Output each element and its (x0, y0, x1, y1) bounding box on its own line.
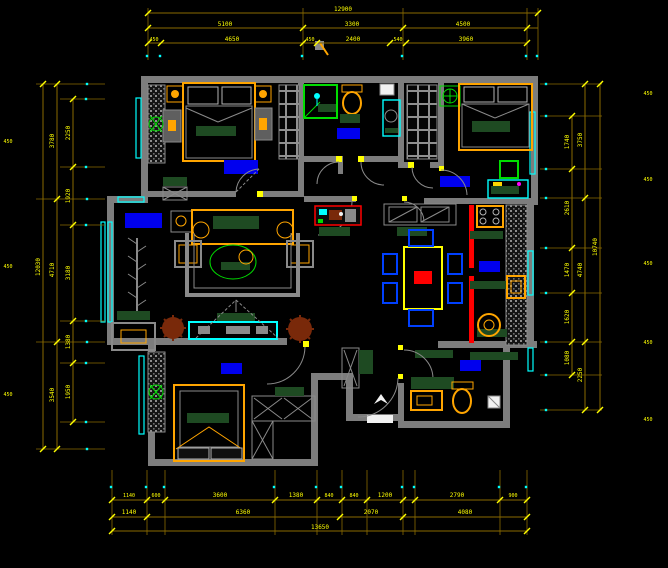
dim-bottom-overall-text: 13650 (311, 524, 329, 531)
dim-left-inner-text-1: 2250 (65, 125, 72, 140)
dim-left-dots-b (85, 224, 87, 226)
wall-bed1-bottom-b (260, 191, 304, 197)
dining-chair-left-2 (383, 283, 397, 303)
wall-bath-bottom-b (360, 156, 398, 162)
kitchen-burner-3 (480, 218, 486, 224)
wall-dining-top (424, 198, 534, 204)
dim-bottom-dots (273, 486, 275, 488)
living-side-table-flower (176, 216, 186, 226)
dim-top-row3-text-5: 540 (393, 37, 402, 43)
dim-left-dots-a (86, 341, 88, 343)
dim-top-dots (525, 55, 527, 57)
bed1-bench (163, 177, 187, 186)
room-label-kitchen (479, 261, 500, 272)
kitchen-burner-1 (480, 209, 486, 215)
bed2-fold-b (495, 104, 529, 118)
dim-right-mid-text-1: 3750 (577, 132, 584, 147)
axis-tag-right-5: 450 (643, 417, 652, 423)
dim-left-mid-text-3: 3540 (49, 387, 56, 402)
bed1-dresser-left-knob (168, 120, 176, 131)
dim-right-dots (545, 168, 547, 170)
dim-left-inner-text-2: 1920 (65, 188, 72, 203)
dim-top-row3-text-1: 450 (149, 37, 158, 43)
axis-tag-left-3: 450 (3, 392, 12, 398)
bed1-pillow-right (222, 87, 251, 104)
dim-bottom-row1-text-8: 2790 (450, 492, 465, 499)
room-label-bed1 (224, 160, 258, 174)
dim-bottom-dots (413, 486, 415, 488)
dim-right-inner-text-1: 1740 (564, 134, 571, 149)
dim-bottom-row2-text-2: 6360 (236, 509, 251, 516)
wall-bath-right (398, 83, 404, 162)
wall-bath2-left (398, 383, 404, 421)
sofa-cushion (213, 216, 259, 229)
bed2-desk-dot (517, 182, 521, 186)
dim-left-mid-text-1: 3780 (49, 133, 56, 148)
dim-bottom-row1-text-3: 3600 (213, 492, 228, 499)
bed1-wardrobe (279, 85, 299, 159)
axis-tag-right-1: 450 (643, 91, 652, 97)
dim-right-overall-text: 10740 (592, 238, 599, 256)
dining-sideboard-diag-a (389, 207, 417, 222)
cloak-door-hinge (408, 162, 414, 168)
entry-label-white (367, 415, 393, 423)
dim-left-inner-text-5: 1950 (65, 384, 72, 399)
bed1-fold-a (186, 108, 218, 122)
bath-vanity-bowl (385, 110, 397, 122)
window-bed1-left (136, 98, 141, 158)
bath-door-hinge-a (336, 156, 342, 162)
dim-bottom-dots (145, 486, 147, 488)
bed1-lamp-left (171, 90, 179, 98)
dim-left-overall-text: 12030 (35, 258, 42, 276)
bed1-fold-b (218, 108, 252, 122)
bath-door-arc-a (317, 162, 339, 184)
living-branch-twig-8 (137, 300, 146, 306)
entry-door-arc (358, 378, 398, 417)
dim-bottom-dots (340, 486, 342, 488)
bed3-fold (176, 427, 242, 449)
corridor-dining-hinge (402, 196, 407, 201)
bath-sink (380, 84, 394, 95)
dim-bottom-dots (163, 486, 165, 488)
bed3-door-hinge (303, 341, 309, 347)
coffee-table-swirl (239, 250, 253, 264)
dim-right-dots (545, 374, 547, 376)
axis-tag-left-2: 450 (3, 264, 12, 270)
bed2-desk-top (491, 186, 519, 194)
wall-left-step2 (107, 338, 155, 345)
wall-bath-bottom-a (304, 156, 338, 162)
bed2-chair (500, 161, 518, 178)
dim-right-dots (545, 115, 547, 117)
dim-top-row3-text-2: 4650 (225, 36, 240, 43)
dining-table-center (414, 271, 432, 284)
dim-right-inner-text-3: 1470 (564, 262, 571, 277)
cloak-door-arc (412, 167, 433, 188)
console-item-cyan (319, 209, 327, 215)
living-branch-twig-5 (128, 274, 137, 280)
bed2-pillow-left (464, 87, 494, 102)
living-branch-twig-4 (137, 264, 146, 270)
tv-shelf (217, 313, 255, 322)
dim-right-mid-text-3: 2250 (577, 367, 584, 382)
dim-left-dots-a (86, 448, 88, 450)
dim-bottom-dots (525, 486, 527, 488)
living-branch-twig-2 (137, 246, 146, 252)
dim-left-dots-b (85, 362, 87, 364)
bed2-pillow-right (498, 87, 527, 102)
bed3-shelf (275, 387, 304, 396)
bed1-lamp-right (259, 90, 267, 98)
dim-bottom-dots (498, 486, 500, 488)
dim-bottom-dots (315, 486, 317, 488)
living-shelf-left (117, 311, 150, 320)
kitchen-heater-core (484, 320, 494, 330)
floor-plan-svg: 1290051003300450045046504502400540396011… (0, 0, 668, 568)
dim-right-inner-text-4: 1620 (564, 309, 571, 324)
dim-left-mid-text-2: 4710 (49, 262, 56, 277)
dining-chair-right-2 (448, 283, 462, 303)
bath2-counter (411, 377, 454, 389)
dim-bottom-row2-text-1: 1140 (122, 509, 137, 516)
room-label-bed3 (221, 363, 242, 374)
dim-right-inner-text-2: 2610 (564, 200, 571, 215)
dim-bottom-row2-text-3: 2070 (364, 509, 379, 516)
bed2-desk-item (493, 182, 502, 186)
dining-chair-left-1 (383, 254, 397, 274)
entry-compass-icon (374, 394, 388, 404)
dim-left-inner-text-3: 3180 (65, 265, 72, 280)
room-label-bed2 (440, 176, 470, 187)
toilet-bowl (343, 92, 361, 114)
bath-cabinet-b (340, 114, 360, 123)
dim-top-row3-text-3: 450 (305, 37, 314, 43)
window-living-left-a (101, 222, 105, 322)
dim-bottom-row1-text-5: 840 (324, 493, 333, 499)
living-branch-twig-3 (128, 256, 137, 262)
bath2-shelf-a (415, 350, 453, 358)
dim-left-dots-a (86, 83, 88, 85)
axis-tag-right-4: 450 (643, 340, 652, 346)
dim-top-overall-text: 12900 (334, 6, 352, 13)
dim-bottom-row1-text-6: 840 (349, 493, 358, 499)
entry-shoe-shelf (359, 350, 373, 374)
dim-top-dots (536, 55, 538, 57)
dim-top-row3-text-6: 3960 (459, 36, 474, 43)
wall-left-upper (141, 76, 148, 201)
dim-left-dots-b (85, 166, 87, 168)
dim-bottom-row1-text-7: 1200 (378, 492, 393, 499)
bed1-dresser-right-knob (259, 118, 267, 130)
kitchen-counter-b (470, 281, 507, 289)
living-side-table-top (171, 211, 192, 232)
axis-tag-right-3: 450 (643, 261, 652, 267)
bath-door-hinge-b (358, 156, 364, 162)
cloak-wardrobe (407, 85, 437, 159)
dim-right-dots (545, 341, 547, 343)
dim-left-dots-a (86, 198, 88, 200)
dim-bottom-dots (110, 486, 112, 488)
shower-diag (304, 102, 320, 118)
corridor-living-hinge (352, 196, 357, 201)
bath2-toilet-bowl (453, 389, 471, 413)
kitchen-burner-2 (493, 209, 499, 215)
dim-left-dots-b (85, 421, 87, 423)
bed2-fold-a (462, 104, 495, 118)
dining-sideboard-shelf (397, 227, 427, 236)
dining-sideboard-diag-b (421, 207, 449, 222)
kitchen-stove (477, 206, 503, 227)
bed2-blanket (472, 121, 510, 132)
living-branch-twig-7 (128, 292, 137, 298)
entry-door-hinge (398, 374, 403, 379)
dim-right-dots (545, 83, 547, 85)
bed1-pillow-left (188, 87, 218, 104)
coffee-table-top (221, 262, 250, 270)
dining-chair-right-1 (448, 254, 462, 274)
bed1-blanket (196, 126, 236, 136)
wall-corridor-bottom (304, 196, 356, 202)
bath-vanity-shelf (385, 128, 398, 133)
room-label-bath2 (460, 360, 481, 371)
wall-top (148, 76, 538, 83)
axis-tag-left-1: 450 (3, 139, 12, 145)
dim-right-dots (545, 197, 547, 199)
bath2-shelf-b (470, 352, 518, 360)
axis-tag-right-2: 450 (643, 177, 652, 183)
bed3-blanket (187, 413, 229, 423)
dim-bottom-row2-text-4: 4080 (458, 509, 473, 516)
dim-top-dots (301, 55, 303, 57)
shower-head (314, 93, 320, 99)
living-branch-twig-1 (128, 238, 137, 244)
dim-right-inner-text-5: 1080 (564, 350, 571, 365)
window-bath2-right (528, 348, 533, 371)
living-branch-twig-6 (137, 282, 146, 288)
window-bed3-left (139, 356, 144, 434)
bath2-toilet-tank (452, 382, 473, 389)
console-shelf (319, 227, 350, 236)
cad-canvas: 1290051003300450045046504502400540396011… (0, 0, 668, 568)
bed3-door-arc (267, 347, 305, 384)
dim-bottom-dots (401, 486, 403, 488)
sofa-scroll-left (193, 222, 209, 238)
kitchen-counter-a (470, 231, 503, 239)
room-label-living (125, 213, 162, 228)
kitchen-burner-4 (493, 218, 499, 224)
console-item-gray (345, 209, 356, 222)
wall-bed1-bottom-a (148, 191, 236, 197)
dining-chair-bottom (409, 310, 433, 326)
dim-right-dots (545, 409, 547, 411)
dim-bottom-row1-text-2: 600 (151, 493, 160, 499)
dim-top-dots (401, 55, 403, 57)
bed3-headboard-b (211, 448, 242, 459)
dim-right-mid-text-2: 4740 (577, 262, 584, 277)
dim-right-dots (545, 247, 547, 249)
dim-bottom-row1-text-9: 900 (508, 493, 517, 499)
bath-cabinet-a (318, 104, 336, 112)
bath2-door-hinge (398, 345, 403, 350)
bed2-frame (459, 84, 532, 150)
dim-bottom-row1-text-1: 1140 (123, 493, 135, 499)
dim-top-dots (159, 55, 161, 57)
room-label-bath (337, 128, 360, 139)
dim-left-dots-b (85, 98, 87, 100)
dim-left-inner-text-4: 1380 (65, 334, 72, 349)
bed1-door-hinge (257, 191, 263, 197)
sectional-inner (194, 233, 291, 288)
wall-entry-left (346, 373, 353, 421)
bath2-vanity-basin (417, 396, 432, 405)
bath-door-arc-b (361, 162, 384, 185)
tv-set (226, 326, 250, 334)
dim-top-row2-text-1: 5100 (218, 21, 233, 28)
dim-top-row3-text-4: 2400 (346, 36, 361, 43)
toilet-tank (342, 85, 362, 92)
console-item-white (339, 212, 343, 216)
dim-bottom-row1-text-4: 1380 (289, 492, 304, 499)
bed3-headboard-a (178, 448, 209, 459)
dim-top-row2-text-2: 3300 (345, 21, 360, 28)
dim-right-dots (545, 292, 547, 294)
bed3-wardrobe-h (252, 396, 315, 421)
console-item-green (318, 219, 323, 223)
bath2-vanity (411, 391, 442, 410)
dim-top-dots (146, 55, 148, 57)
wall-bath2-bottom (398, 421, 510, 428)
dim-top-row2-text-3: 4500 (456, 21, 471, 28)
dim-left-dots-b (85, 320, 87, 322)
